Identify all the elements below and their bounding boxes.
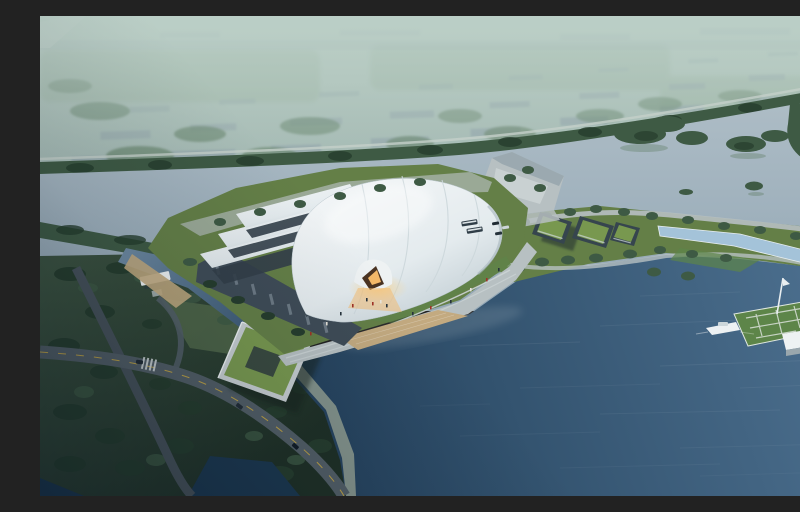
architectural-rendering xyxy=(40,16,800,496)
rendering-canvas xyxy=(40,16,800,496)
corner-shade xyxy=(40,16,800,496)
